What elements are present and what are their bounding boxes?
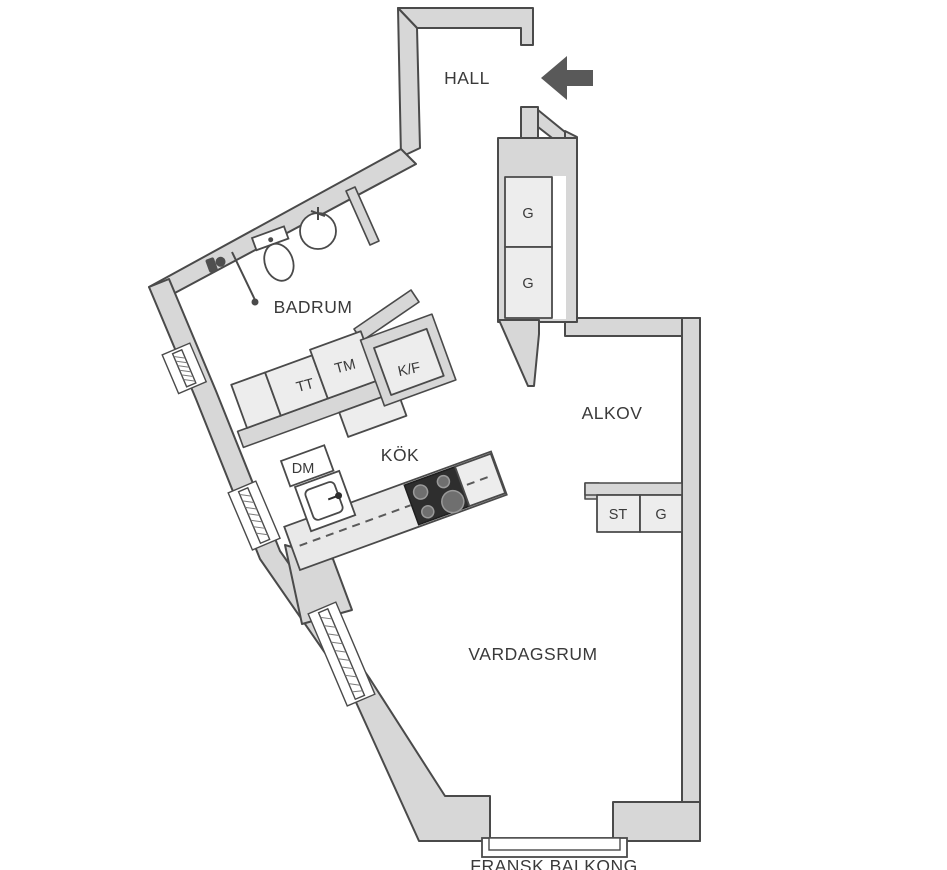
closet-gap [552, 176, 566, 319]
room-label-hall: HALL [444, 68, 490, 88]
walls [149, 8, 700, 841]
wall-entry-lower-jamb [521, 107, 538, 141]
closet-label-g-lower: G [522, 276, 533, 292]
entry-arrow-icon [541, 56, 593, 100]
wall-bottom-right [613, 802, 700, 841]
window-vardagsrum-icon [308, 602, 375, 706]
room-label-alkov: ALKOV [582, 403, 643, 423]
closet-label-st: ST [609, 507, 628, 523]
toilet-icon [252, 226, 301, 286]
shower-divider-end [252, 299, 259, 306]
room-label-fransk-balkong: FRANSK BALKONG [470, 856, 637, 870]
room-label-vardagsrum: VARDAGSRUM [468, 644, 597, 664]
wall-stub [346, 187, 379, 245]
wall-alkov-top [565, 131, 700, 336]
appliance-label-dm: DM [292, 461, 315, 477]
wall-right [682, 318, 700, 841]
wall-hall-left [398, 8, 420, 157]
french-balcony [482, 838, 627, 857]
window-kok-icon [228, 481, 280, 550]
room-label-kok: KÖK [381, 445, 419, 465]
floor-plan-canvas: HALL BADRUM ALKOV KÖK VARDAGSRUM FRANSK … [0, 0, 947, 870]
floor-plan-page: HALL BADRUM ALKOV KÖK VARDAGSRUM FRANSK … [0, 0, 947, 870]
shower-divider [232, 252, 255, 300]
wall-alkov-bottom [585, 483, 682, 495]
closet-label-g-alkov: G [655, 507, 666, 523]
wall-wedge [499, 320, 539, 386]
closet-label-g-upper: G [522, 206, 533, 222]
room-label-badrum: BADRUM [274, 297, 353, 317]
